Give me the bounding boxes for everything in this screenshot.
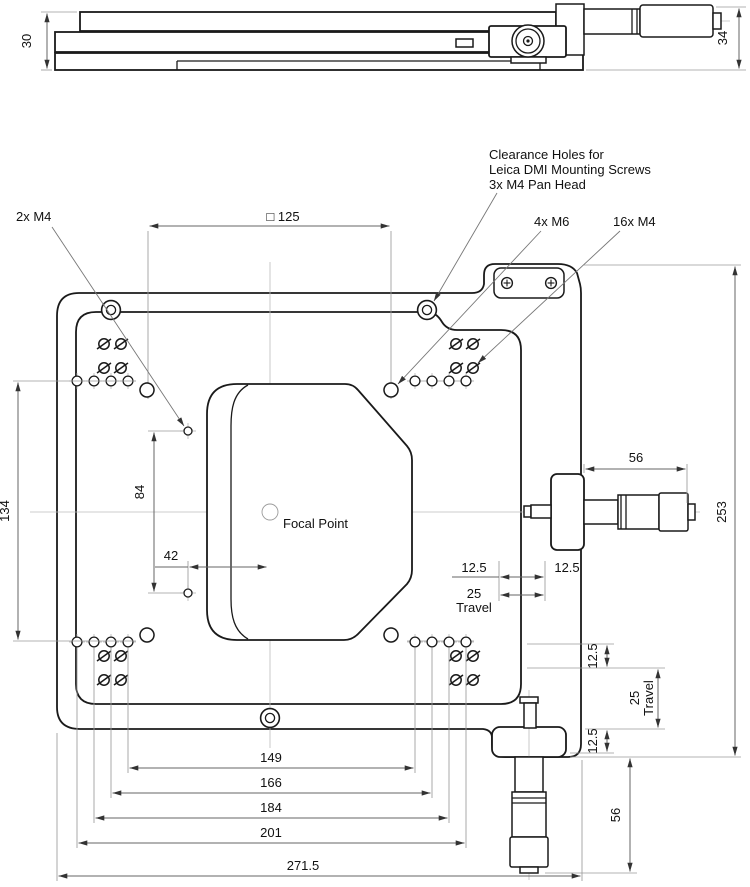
- micrometer-cap-side: [713, 13, 721, 29]
- side-view: 30 34: [19, 4, 746, 70]
- dim-253-label: 253: [714, 501, 729, 523]
- plan-view: Focal Point: [0, 147, 741, 881]
- x-spindle-collar: [524, 506, 531, 517]
- x-spindle: [531, 505, 551, 518]
- dim-271-label: 271.5: [287, 858, 320, 873]
- dim-84-label: 84: [132, 485, 147, 499]
- dim-x-travel-word: Travel: [456, 600, 492, 615]
- dim-56x-label: 56: [629, 450, 643, 465]
- dim-30-label: 30: [19, 34, 34, 48]
- x-micrometer-side: [556, 4, 721, 55]
- dim-166-label: 166: [260, 775, 282, 790]
- dim-x-travel-right: 12.5: [554, 560, 579, 575]
- dim-square-125: □ 125: [150, 209, 390, 226]
- micrometer-thimble-side: [640, 5, 713, 37]
- clearance-note-line1: Clearance Holes for: [489, 147, 605, 162]
- y-micrometer-knob-side: [489, 25, 566, 63]
- dim-184-label: 184: [260, 800, 282, 815]
- dim-56-y: 56: [545, 759, 637, 874]
- dim-y-travel-amount: 25: [627, 691, 642, 705]
- y-spindle: [524, 703, 536, 728]
- label-16x-m4: 16x M4: [613, 214, 656, 229]
- x-thimble: [659, 493, 688, 531]
- y-spindle-collar: [520, 697, 538, 703]
- dim-56y-label: 56: [608, 808, 623, 822]
- stage-aperture: [207, 384, 412, 640]
- y-sleeve: [512, 792, 546, 837]
- technical-drawing: 30 34 Focal Point: [0, 0, 750, 887]
- y-barrel: [515, 757, 543, 792]
- dim-125-label: □ 125: [266, 209, 299, 224]
- x-barrel: [584, 500, 618, 524]
- y-thimble: [510, 837, 548, 867]
- dim-y-travel-upper: 12.5: [585, 643, 600, 668]
- label-2x-m4: 2x M4: [16, 209, 51, 224]
- x-carriage-block: [551, 474, 584, 550]
- clearance-note-line2: Leica DMI Mounting Screws: [489, 162, 651, 177]
- middle-plate-tab: [456, 39, 473, 47]
- clearance-note-line3: 3x M4 Pan Head: [489, 177, 586, 192]
- dim-x-travel-amount: 25: [467, 586, 481, 601]
- knob-center-dot: [526, 39, 529, 42]
- drawing-sheet: 30 34 Focal Point: [0, 0, 750, 887]
- x-sleeve: [618, 495, 659, 529]
- x-cap: [688, 504, 695, 520]
- focal-point-label: Focal Point: [283, 516, 348, 531]
- dim-201-label: 201: [260, 825, 282, 840]
- carriage-foot: [511, 57, 546, 63]
- y-cap: [520, 867, 538, 873]
- dim-y-travel-word: Travel: [641, 680, 656, 716]
- dim-134-label: 134: [0, 500, 12, 522]
- dim-149-label: 149: [260, 750, 282, 765]
- dim-34-label: 34: [715, 31, 730, 45]
- dim-x-travel-left: 12.5: [461, 560, 486, 575]
- dim-42-label: 42: [164, 548, 178, 563]
- top-plate-side: [80, 12, 556, 31]
- dim-y-travel-lower: 12.5: [585, 728, 600, 753]
- label-4x-m6: 4x M6: [534, 214, 569, 229]
- middle-plate-side: [55, 32, 553, 52]
